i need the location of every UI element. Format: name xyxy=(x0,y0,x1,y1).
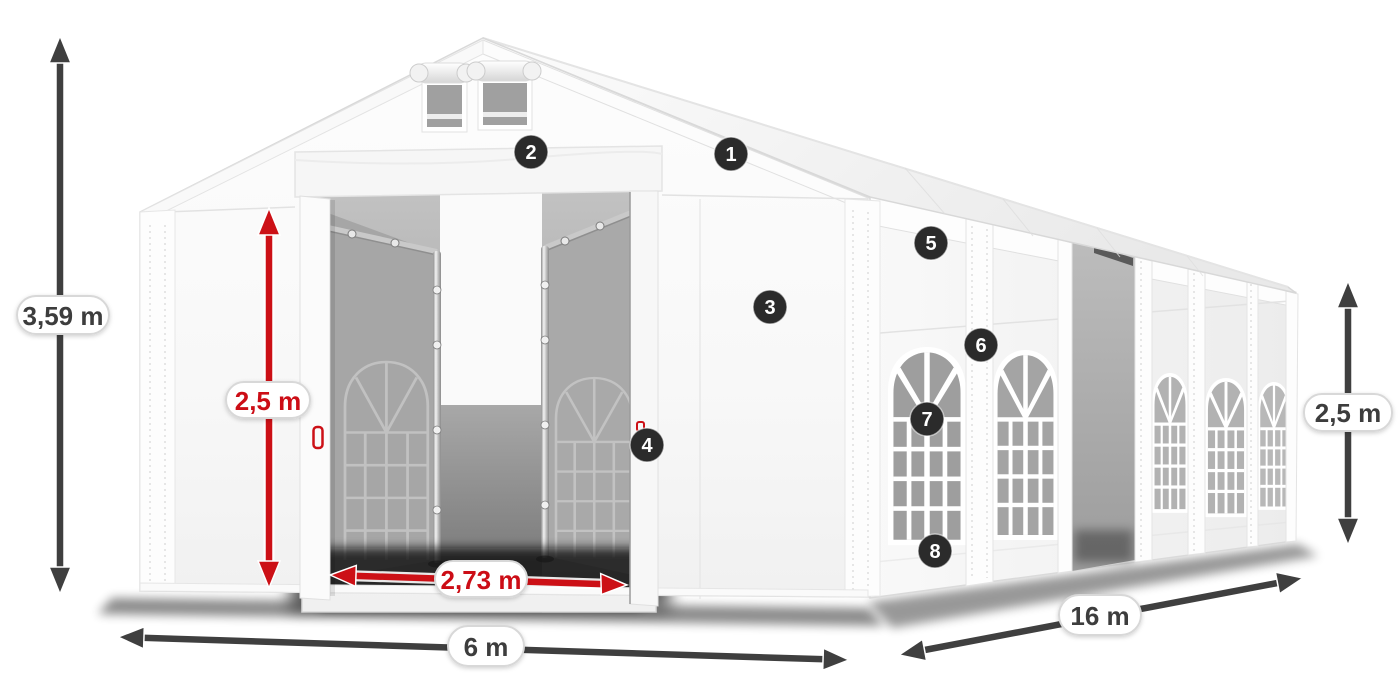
arched-window xyxy=(888,347,966,545)
hotspot-number: 6 xyxy=(975,335,986,357)
entrance-height-value: 2,5 m xyxy=(235,386,302,416)
hotspot-number: 1 xyxy=(725,144,736,166)
hotspot-badge-4[interactable]: 4 xyxy=(630,428,664,462)
hotspot-badge-2[interactable]: 2 xyxy=(514,135,548,169)
entrance-width-label: 2,73 m xyxy=(435,561,527,597)
tent-illustration: 3,59 m 2,5 m 2,73 m 6 m 16 m 2,5 m 1 2 3… xyxy=(0,0,1400,700)
hotspot-number: 2 xyxy=(525,142,536,164)
hotspot-badge-5[interactable]: 5 xyxy=(914,226,948,260)
see-through-gap xyxy=(440,189,542,415)
total-height-label: 3,59 m xyxy=(17,296,109,334)
hotspot-number: 8 xyxy=(929,541,940,563)
corner-strip-left xyxy=(140,210,175,591)
hotspot-badge-1[interactable]: 1 xyxy=(714,137,748,171)
tent-dimension-diagram: 3,59 m 2,5 m 2,73 m 6 m 16 m 2,5 m 1 2 3… xyxy=(0,0,1400,700)
side-length-value: 16 m xyxy=(1070,601,1129,631)
arrow-down-icon xyxy=(49,567,71,594)
arched-window xyxy=(1258,382,1290,510)
arched-window xyxy=(993,350,1058,540)
hotspot-number: 3 xyxy=(764,297,775,319)
entrance-lintel xyxy=(295,146,662,197)
arched-window xyxy=(1152,373,1188,513)
hotspot-number: 7 xyxy=(921,409,932,431)
front-width-value: 6 m xyxy=(464,632,509,662)
hotspot-number: 4 xyxy=(641,435,653,457)
hotspot-badge-8[interactable]: 8 xyxy=(918,534,952,568)
side-height-value: 2,5 m xyxy=(1315,398,1382,428)
arrow-right-icon xyxy=(1275,572,1303,594)
total-height-value: 3,59 m xyxy=(23,301,104,331)
side-door-opening xyxy=(1072,243,1135,571)
entrance-height-label: 2,5 m xyxy=(226,382,310,418)
arrow-up-icon xyxy=(1337,281,1359,308)
entrance-width-value: 2,73 m xyxy=(441,565,522,595)
side-length-label: 16 m xyxy=(1059,595,1141,635)
hotspot-badge-7[interactable]: 7 xyxy=(910,402,944,436)
hotspot-badge-3[interactable]: 3 xyxy=(753,290,787,324)
arrow-left-icon xyxy=(899,639,927,661)
hotspot-number: 5 xyxy=(925,233,936,255)
corner-strip-right xyxy=(845,199,880,597)
arrow-down-icon xyxy=(1337,518,1359,545)
front-width-label: 6 m xyxy=(448,626,524,666)
side-height-label: 2,5 m xyxy=(1304,394,1392,431)
entrance-interior xyxy=(302,189,656,614)
arrow-right-icon xyxy=(823,648,849,670)
arched-window xyxy=(1205,378,1247,517)
hotspot-badge-6[interactable]: 6 xyxy=(964,328,998,362)
arrow-up-icon xyxy=(49,36,71,63)
arrow-left-icon xyxy=(118,627,144,649)
entrance-door-right xyxy=(630,191,658,606)
roof-vent-right xyxy=(467,61,541,130)
